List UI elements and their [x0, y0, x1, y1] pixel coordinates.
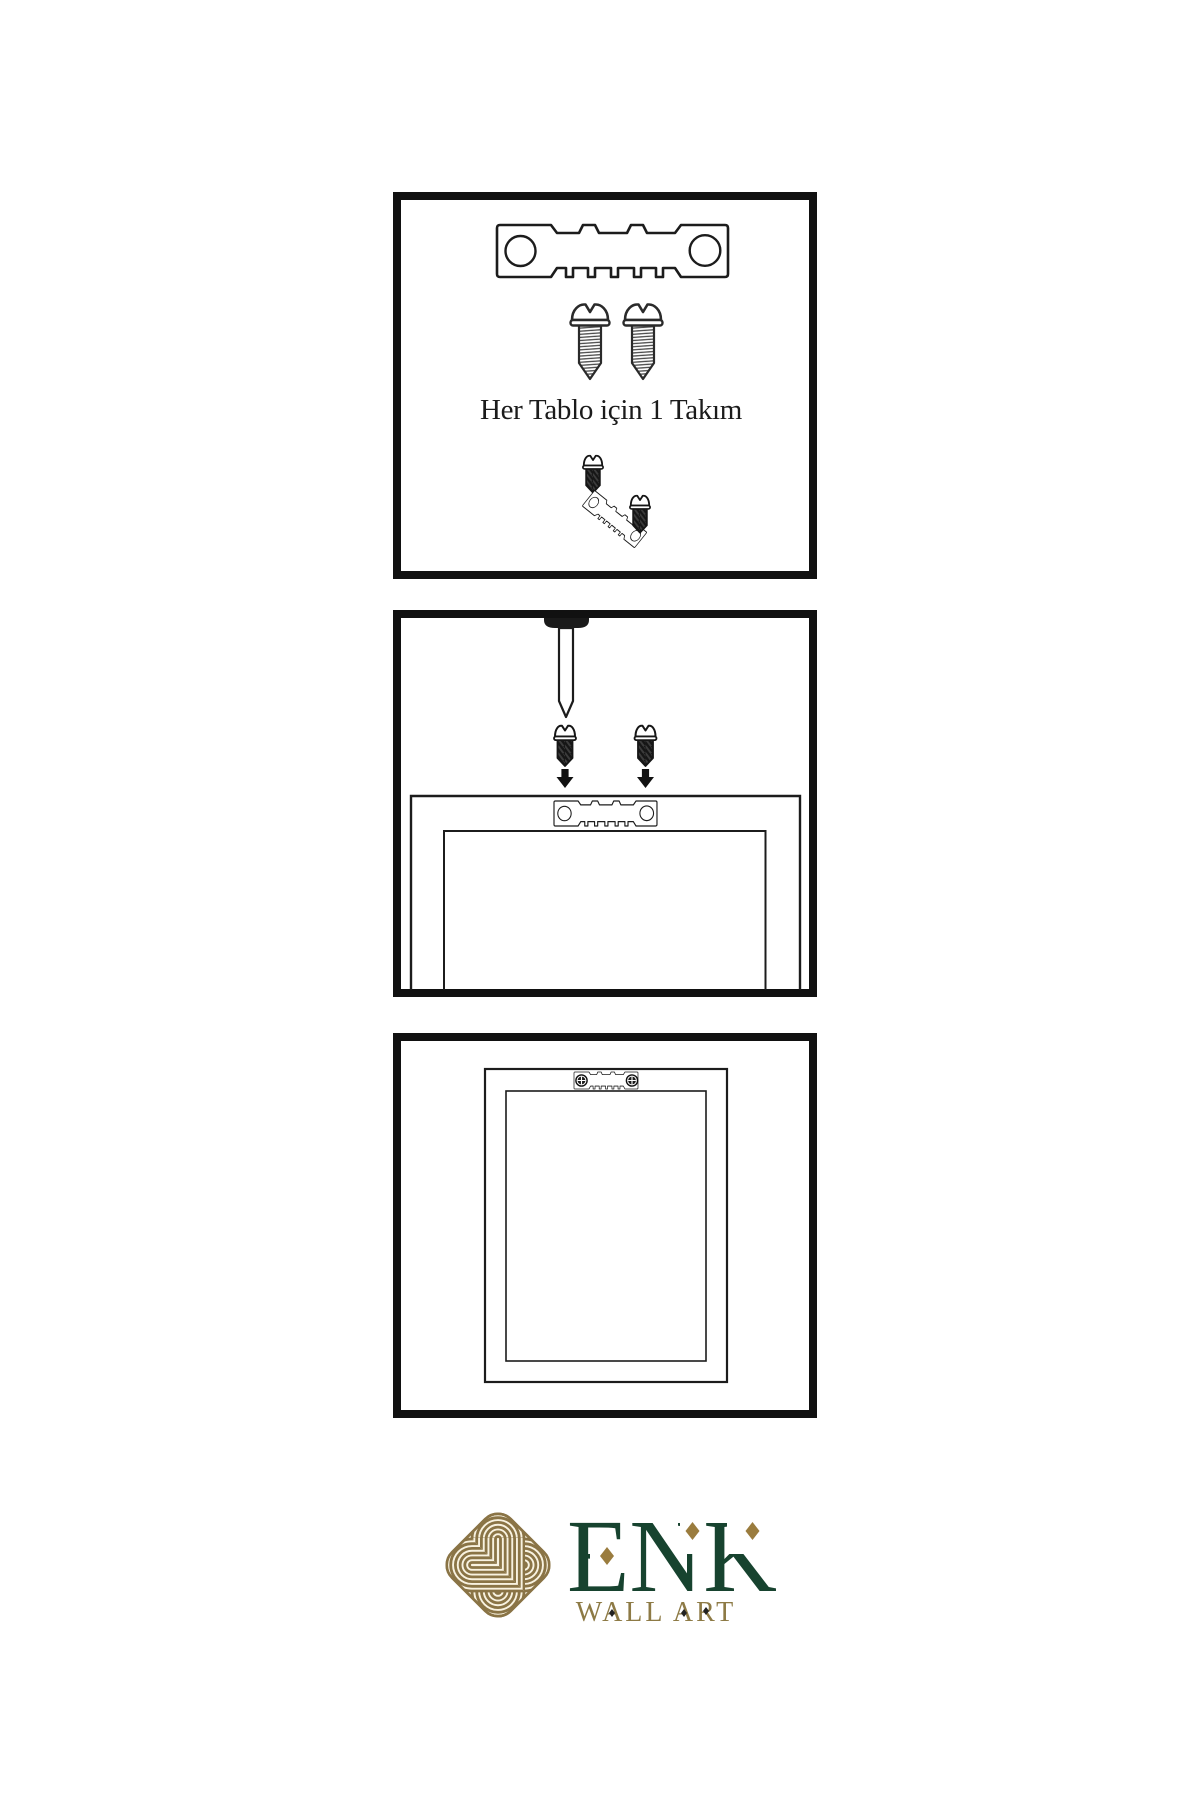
svg-text:Her Tablo için 1 Takım: Her Tablo için 1 Takım — [480, 394, 743, 426]
svg-text:WALL ART: WALL ART — [576, 1597, 737, 1628]
